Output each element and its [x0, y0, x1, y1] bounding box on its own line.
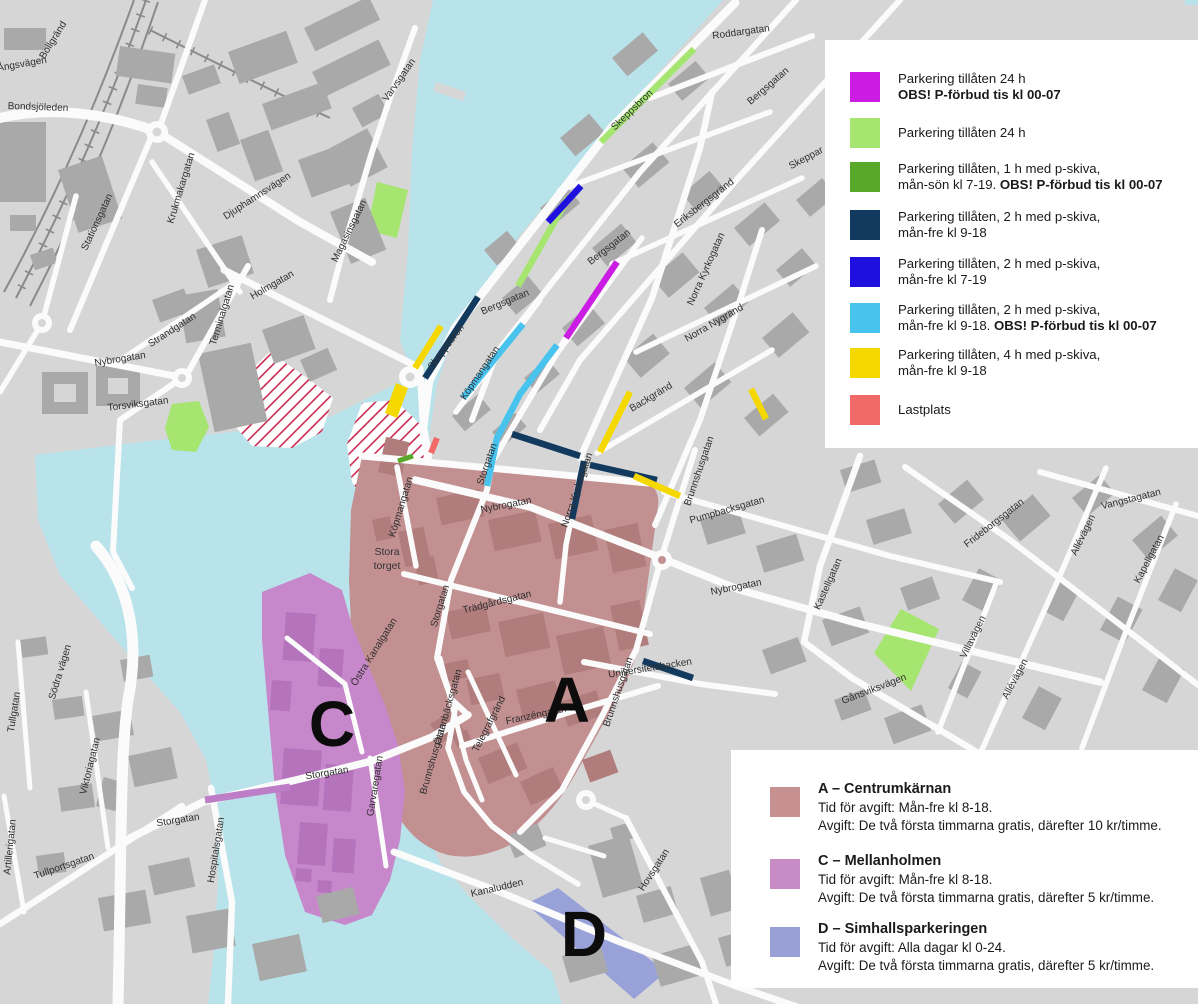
legend-text: Parkering tillåten, 2 h med p-skiva, mån… [898, 302, 1157, 335]
legend-swatch [850, 118, 880, 148]
legend-item: Parkering tillåten, 1 h med p-skiva, mån… [850, 162, 1163, 192]
legend-swatch [770, 859, 800, 889]
svg-text:torget: torget [374, 560, 401, 572]
legend-swatch [770, 927, 800, 957]
legend-item: Parkering tillåten, 2 h med p-skiva, mån… [850, 303, 1157, 333]
legend-item: Parkering tillåten, 2 h med p-skiva, mån… [850, 257, 1100, 287]
legend-item: Parkering tillåten, 2 h med p-skiva, mån… [850, 210, 1100, 240]
parking-map-page: Bollgränd Ångsvägen Bondsjöleden Station… [0, 0, 1198, 1004]
legend-text: Lastplats [898, 402, 951, 419]
legend-text: D – Simhallsparkeringen Tid för avgift: … [818, 920, 1154, 976]
legend-text: Parkering tillåten, 4 h med p-skiva, mån… [898, 347, 1100, 380]
legend-swatch [850, 162, 880, 192]
legend-item: Parkering tillåten, 4 h med p-skiva, mån… [850, 348, 1100, 378]
parking-legend: Parkering tillåten 24 h OBS! P-förbud ti… [825, 40, 1198, 448]
zone-c-letter: C [309, 688, 355, 760]
legend-swatch [850, 348, 880, 378]
street-label: Bondsjöleden [8, 101, 69, 114]
legend-text: Parkering tillåten, 2 h med p-skiva, mån… [898, 209, 1100, 242]
zone-d-letter: D [561, 898, 607, 970]
legend-item: Parkering tillåten 24 h OBS! P-förbud ti… [850, 72, 1061, 102]
legend-text: Parkering tillåten, 1 h med p-skiva, mån… [898, 161, 1163, 194]
legend-swatch [850, 257, 880, 287]
legend-swatch [850, 303, 880, 333]
legend-swatch [850, 210, 880, 240]
legend-text: Parkering tillåten 24 h OBS! P-förbud ti… [898, 71, 1061, 104]
zone-legend-item: D – Simhallsparkeringen Tid för avgift: … [770, 920, 1154, 976]
zone-legend-item: A – Centrumkärnan Tid för avgift: Mån-fr… [770, 780, 1162, 836]
legend-item: Lastplats [850, 395, 951, 425]
legend-text: Parkering tillåten, 2 h med p-skiva, mån… [898, 256, 1100, 289]
legend-text: A – Centrumkärnan Tid för avgift: Mån-fr… [818, 780, 1162, 836]
legend-text: C – Mellanholmen Tid för avgift: Mån-fre… [818, 852, 1154, 908]
legend-text: Parkering tillåten 24 h [898, 125, 1026, 142]
legend-swatch [850, 395, 880, 425]
legend-swatch [850, 72, 880, 102]
zone-legend-item: C – Mellanholmen Tid för avgift: Mån-fre… [770, 852, 1154, 908]
zone-legend: A – Centrumkärnan Tid för avgift: Mån-fr… [731, 750, 1198, 988]
svg-text:Stora: Stora [374, 546, 399, 558]
zone-a-letter: A [544, 664, 590, 736]
legend-item: Parkering tillåten 24 h [850, 118, 1026, 148]
legend-swatch [770, 787, 800, 817]
